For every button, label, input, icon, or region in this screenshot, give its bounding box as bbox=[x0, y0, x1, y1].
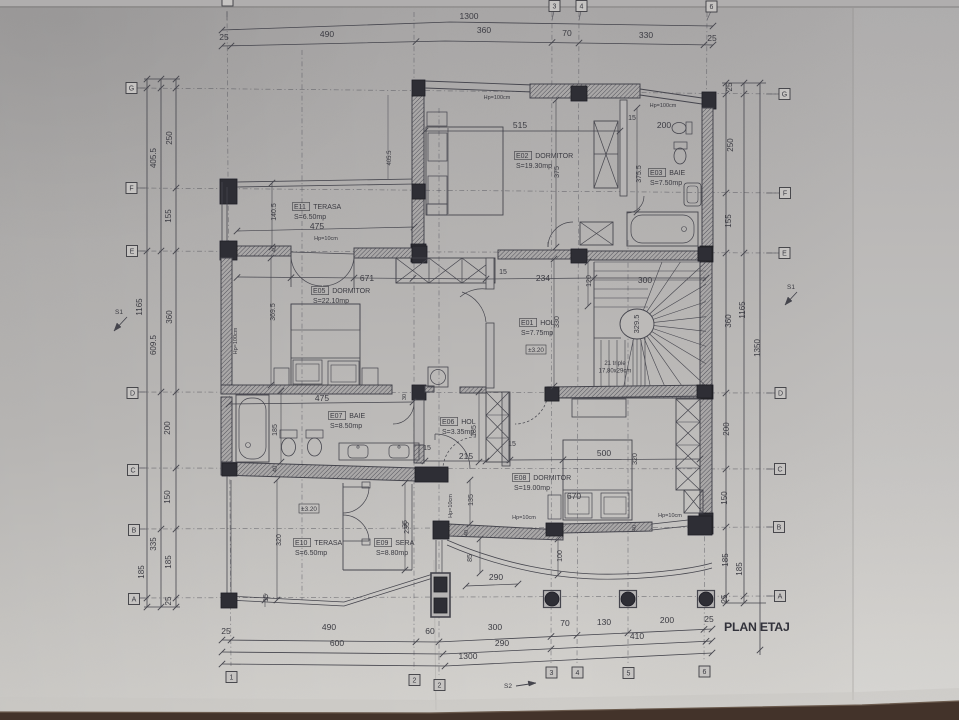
svg-text:1165: 1165 bbox=[738, 301, 747, 319]
svg-text:609.5: 609.5 bbox=[149, 334, 158, 355]
svg-text:TERASA: TERASA bbox=[313, 204, 341, 211]
svg-text:Hp=100cm: Hp=100cm bbox=[484, 95, 511, 101]
svg-text:15: 15 bbox=[628, 115, 636, 122]
svg-text:490: 490 bbox=[322, 622, 336, 632]
svg-text:1300: 1300 bbox=[459, 651, 478, 661]
svg-text:40: 40 bbox=[272, 245, 278, 252]
svg-text:40: 40 bbox=[273, 465, 279, 472]
svg-text:Hp=10cm: Hp=10cm bbox=[448, 494, 454, 518]
svg-text:S=6.50mp: S=6.50mp bbox=[295, 550, 327, 557]
svg-text:185: 185 bbox=[721, 553, 730, 567]
svg-text:155: 155 bbox=[164, 209, 173, 223]
svg-text:670: 670 bbox=[567, 491, 581, 501]
svg-text:BAIE: BAIE bbox=[669, 170, 685, 177]
svg-text:25: 25 bbox=[219, 32, 229, 42]
svg-text:320: 320 bbox=[276, 534, 283, 546]
svg-text:B: B bbox=[777, 525, 782, 532]
svg-text:250: 250 bbox=[726, 138, 735, 152]
svg-text:60: 60 bbox=[425, 626, 435, 636]
svg-text:BAIE: BAIE bbox=[349, 413, 365, 420]
svg-text:40: 40 bbox=[464, 530, 470, 536]
svg-text:140.5: 140.5 bbox=[271, 203, 278, 221]
svg-text:3: 3 bbox=[550, 670, 554, 677]
svg-text:15: 15 bbox=[508, 441, 516, 448]
svg-text:F: F bbox=[129, 186, 133, 193]
svg-text:S=6.50mp: S=6.50mp bbox=[294, 214, 326, 221]
svg-text:85: 85 bbox=[467, 554, 474, 562]
svg-text:Hp=10cm: Hp=10cm bbox=[658, 513, 682, 519]
svg-text:490: 490 bbox=[320, 29, 334, 39]
svg-text:4: 4 bbox=[580, 4, 584, 11]
svg-text:1350: 1350 bbox=[753, 339, 762, 357]
svg-text:330: 330 bbox=[554, 316, 561, 328]
svg-text:200: 200 bbox=[722, 422, 731, 436]
svg-text:200: 200 bbox=[660, 615, 674, 625]
svg-text:C: C bbox=[777, 467, 782, 474]
svg-text:475: 475 bbox=[310, 221, 324, 231]
svg-text:HOL: HOL bbox=[461, 419, 476, 426]
svg-text:185: 185 bbox=[137, 565, 146, 579]
svg-text:25: 25 bbox=[720, 594, 729, 603]
svg-text:A: A bbox=[132, 597, 137, 604]
svg-text:200: 200 bbox=[163, 421, 172, 435]
svg-text:A: A bbox=[778, 594, 783, 601]
svg-text:130: 130 bbox=[597, 617, 611, 627]
svg-text:360: 360 bbox=[477, 25, 491, 35]
svg-text:E01: E01 bbox=[521, 320, 534, 327]
svg-text:25: 25 bbox=[164, 596, 173, 605]
svg-text:Hp=10cm: Hp=10cm bbox=[512, 515, 536, 521]
svg-text:1165: 1165 bbox=[135, 298, 144, 316]
svg-text:DORMITOR: DORMITOR bbox=[535, 153, 573, 160]
svg-text:G: G bbox=[129, 86, 134, 93]
svg-text:300: 300 bbox=[638, 275, 652, 285]
svg-text:330: 330 bbox=[639, 30, 653, 40]
svg-text:E: E bbox=[130, 249, 135, 256]
svg-text:185: 185 bbox=[735, 562, 744, 576]
svg-text:671: 671 bbox=[360, 273, 374, 283]
svg-text:25: 25 bbox=[221, 626, 231, 636]
svg-text:6: 6 bbox=[703, 669, 707, 676]
svg-text:D: D bbox=[130, 391, 135, 398]
svg-text:S2: S2 bbox=[504, 683, 512, 690]
svg-text:475: 475 bbox=[315, 393, 329, 403]
svg-text:S1: S1 bbox=[115, 309, 123, 316]
svg-text:SERA: SERA bbox=[395, 540, 414, 547]
svg-text:S=7.50mp: S=7.50mp bbox=[650, 180, 682, 187]
svg-text:35: 35 bbox=[402, 520, 409, 528]
svg-text:E11: E11 bbox=[294, 204, 306, 211]
svg-text:70: 70 bbox=[562, 28, 572, 38]
svg-text:360: 360 bbox=[165, 310, 174, 324]
svg-text:120: 120 bbox=[586, 275, 593, 287]
svg-text:360: 360 bbox=[724, 314, 733, 328]
svg-text:G: G bbox=[782, 92, 787, 99]
svg-text:150: 150 bbox=[720, 491, 729, 505]
svg-text:200: 200 bbox=[657, 120, 671, 130]
svg-text:290: 290 bbox=[495, 638, 509, 648]
svg-text:25: 25 bbox=[725, 82, 734, 91]
svg-text:405.5: 405.5 bbox=[387, 150, 393, 166]
svg-text:185: 185 bbox=[164, 555, 173, 569]
svg-text:500: 500 bbox=[597, 448, 611, 458]
svg-text:Hp=100cm: Hp=100cm bbox=[233, 327, 239, 354]
svg-text:2: 2 bbox=[438, 683, 442, 690]
svg-text:±3.20: ±3.20 bbox=[301, 506, 317, 513]
svg-text:1300: 1300 bbox=[460, 11, 479, 21]
svg-text:E: E bbox=[782, 251, 787, 258]
svg-text:15: 15 bbox=[499, 269, 507, 276]
svg-text:335: 335 bbox=[149, 537, 158, 551]
svg-text:15: 15 bbox=[263, 594, 270, 602]
svg-text:S=3.35mp: S=3.35mp bbox=[442, 429, 474, 436]
svg-text:D: D bbox=[778, 391, 783, 398]
svg-text:290: 290 bbox=[489, 572, 503, 582]
svg-text:135: 135 bbox=[468, 494, 475, 506]
svg-text:40: 40 bbox=[632, 525, 638, 531]
svg-text:150: 150 bbox=[163, 490, 172, 504]
svg-text:C: C bbox=[130, 468, 135, 475]
svg-text:S=8.50mp: S=8.50mp bbox=[330, 423, 362, 430]
svg-text:S=19.00mp: S=19.00mp bbox=[514, 485, 550, 492]
svg-text:215: 215 bbox=[459, 451, 473, 461]
svg-text:S=7.75mp: S=7.75mp bbox=[521, 330, 553, 337]
svg-text:E02: E02 bbox=[516, 153, 529, 160]
svg-text:S=22.10mp: S=22.10mp bbox=[313, 298, 349, 305]
svg-text:4: 4 bbox=[576, 670, 580, 677]
svg-text:5: 5 bbox=[627, 671, 631, 678]
svg-text:100: 100 bbox=[557, 550, 564, 562]
svg-text:6: 6 bbox=[710, 4, 714, 11]
svg-text:25: 25 bbox=[707, 33, 717, 43]
svg-text:1: 1 bbox=[230, 675, 234, 682]
svg-text:E09: E09 bbox=[376, 540, 389, 547]
svg-text:S=8.80mp: S=8.80mp bbox=[376, 550, 408, 557]
svg-text:F: F bbox=[783, 191, 787, 198]
svg-text:320: 320 bbox=[632, 453, 639, 465]
svg-text:369.5: 369.5 bbox=[270, 303, 277, 321]
svg-text:17,80x29cm: 17,80x29cm bbox=[599, 369, 632, 375]
svg-text:410: 410 bbox=[630, 631, 644, 641]
svg-text:25: 25 bbox=[704, 614, 714, 624]
svg-text:DORMITOR: DORMITOR bbox=[533, 475, 571, 482]
svg-text:3: 3 bbox=[553, 4, 557, 11]
svg-text:15: 15 bbox=[423, 445, 431, 452]
svg-text:S=19.30mp: S=19.30mp bbox=[516, 163, 552, 170]
svg-text:250: 250 bbox=[165, 131, 174, 145]
svg-text:21 triple: 21 triple bbox=[604, 361, 626, 367]
svg-text:375: 375 bbox=[554, 166, 561, 178]
svg-text:B: B bbox=[132, 528, 137, 535]
svg-text:405.5: 405.5 bbox=[149, 147, 158, 168]
svg-text:234: 234 bbox=[536, 273, 550, 283]
svg-text:300: 300 bbox=[488, 622, 502, 632]
svg-text:E07: E07 bbox=[330, 413, 343, 420]
svg-text:E08: E08 bbox=[514, 475, 527, 482]
svg-text:2: 2 bbox=[413, 678, 417, 685]
svg-text:S1: S1 bbox=[787, 284, 795, 291]
svg-text:515: 515 bbox=[513, 120, 527, 130]
svg-text:E06: E06 bbox=[442, 419, 455, 426]
svg-text:±3.20: ±3.20 bbox=[528, 347, 544, 354]
svg-text:PLAN ETAJ: PLAN ETAJ bbox=[724, 620, 790, 634]
svg-text:TERASA: TERASA bbox=[314, 540, 342, 547]
svg-text:329.5: 329.5 bbox=[632, 315, 641, 334]
svg-text:600: 600 bbox=[330, 638, 344, 648]
svg-text:185: 185 bbox=[471, 425, 478, 437]
svg-text:70: 70 bbox=[560, 618, 570, 628]
svg-text:DORMITOR: DORMITOR bbox=[332, 288, 370, 295]
svg-text:155: 155 bbox=[724, 214, 733, 228]
svg-text:Hp=10cm: Hp=10cm bbox=[314, 236, 338, 242]
svg-text:E10: E10 bbox=[295, 540, 308, 547]
svg-text:E05: E05 bbox=[313, 288, 326, 295]
svg-text:E03: E03 bbox=[650, 170, 663, 177]
svg-text:185: 185 bbox=[272, 424, 279, 436]
svg-text:Hp=100cm: Hp=100cm bbox=[650, 103, 677, 109]
svg-text:30: 30 bbox=[402, 394, 408, 400]
svg-text:375.5: 375.5 bbox=[636, 165, 643, 183]
svg-text:HOL: HOL bbox=[540, 320, 555, 327]
